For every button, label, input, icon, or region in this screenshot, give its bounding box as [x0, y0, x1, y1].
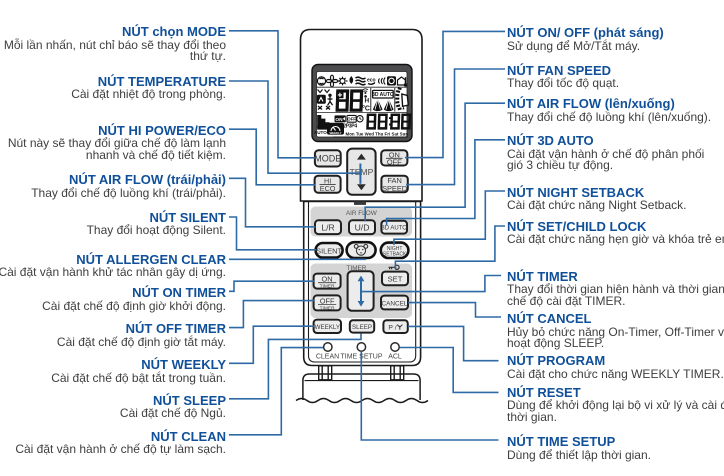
svg-text:ON: ON — [322, 275, 333, 284]
svg-text:L/R: L/R — [321, 223, 334, 233]
svg-text:ACL: ACL — [388, 354, 402, 361]
svg-text:SLEEP: SLEEP — [352, 324, 372, 331]
svg-text:TIMER: TIMER — [320, 306, 335, 312]
svg-text:eco: eco — [367, 78, 376, 84]
svg-text:OFF: OFF — [320, 296, 335, 305]
svg-text:U/D: U/D — [355, 223, 370, 233]
svg-text:TEMP: TEMP — [349, 167, 373, 177]
svg-text:P /: P / — [388, 324, 396, 331]
svg-text:MODE: MODE — [314, 154, 341, 164]
svg-text:SET: SET — [388, 275, 403, 284]
svg-text:OFF: OFF — [387, 158, 402, 167]
svg-text:AIR FLOW: AIR FLOW — [346, 210, 378, 217]
svg-text:3D AUTO: 3D AUTO — [372, 92, 394, 98]
svg-text:ON: ON — [335, 117, 343, 123]
svg-text:3D AUTO: 3D AUTO — [381, 226, 407, 232]
svg-text:ECO: ECO — [320, 184, 336, 193]
svg-text:WEEKLY: WEEKLY — [329, 131, 341, 135]
svg-text:H: H — [364, 98, 369, 105]
svg-text:AUTO: AUTO — [314, 130, 327, 135]
svg-text:TIMER: TIMER — [320, 284, 335, 290]
svg-text:WEEKLY: WEEKLY — [315, 324, 340, 331]
svg-text:CANCEL: CANCEL — [382, 300, 408, 307]
svg-text:Mon Tue Wed Thu Fri Sat Sun: Mon Tue Wed Thu Fri Sat Sun — [346, 131, 409, 136]
svg-text:SPEED: SPEED — [382, 184, 407, 193]
svg-text:OFF: OFF — [347, 117, 356, 122]
svg-text:SETBACK: SETBACK — [383, 252, 407, 258]
svg-text:°C: °C — [362, 104, 370, 112]
svg-text:SILENT: SILENT — [316, 246, 342, 255]
svg-text:CLEAN: CLEAN — [316, 354, 339, 361]
